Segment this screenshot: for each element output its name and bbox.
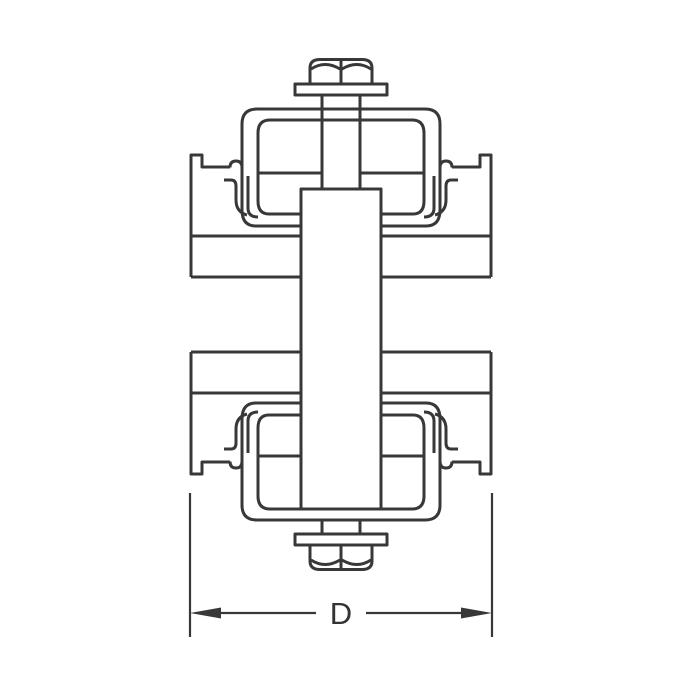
channel-right-profile bbox=[452, 155, 491, 277]
arrowhead-right bbox=[461, 608, 492, 619]
spacer-block bbox=[301, 189, 381, 509]
arrowhead-left bbox=[190, 608, 221, 619]
hex-bolt-and-washer bbox=[295, 60, 387, 96]
dimension-label: D bbox=[330, 596, 352, 631]
strut-clamp-assembly-drawing: D bbox=[0, 0, 700, 700]
channel-lip-hook-left bbox=[230, 161, 242, 168]
channel-left-profile bbox=[191, 155, 230, 277]
technical-drawing-canvas: D bbox=[0, 0, 700, 700]
channel-lip-stub-right bbox=[435, 180, 458, 215]
channel-lip-hook-right bbox=[440, 161, 452, 168]
channel-lip-stub-left bbox=[224, 180, 247, 215]
hex-nut-and-washer bbox=[295, 534, 387, 570]
bolt-shaft-bottom bbox=[322, 520, 360, 534]
washer bbox=[295, 84, 387, 95]
